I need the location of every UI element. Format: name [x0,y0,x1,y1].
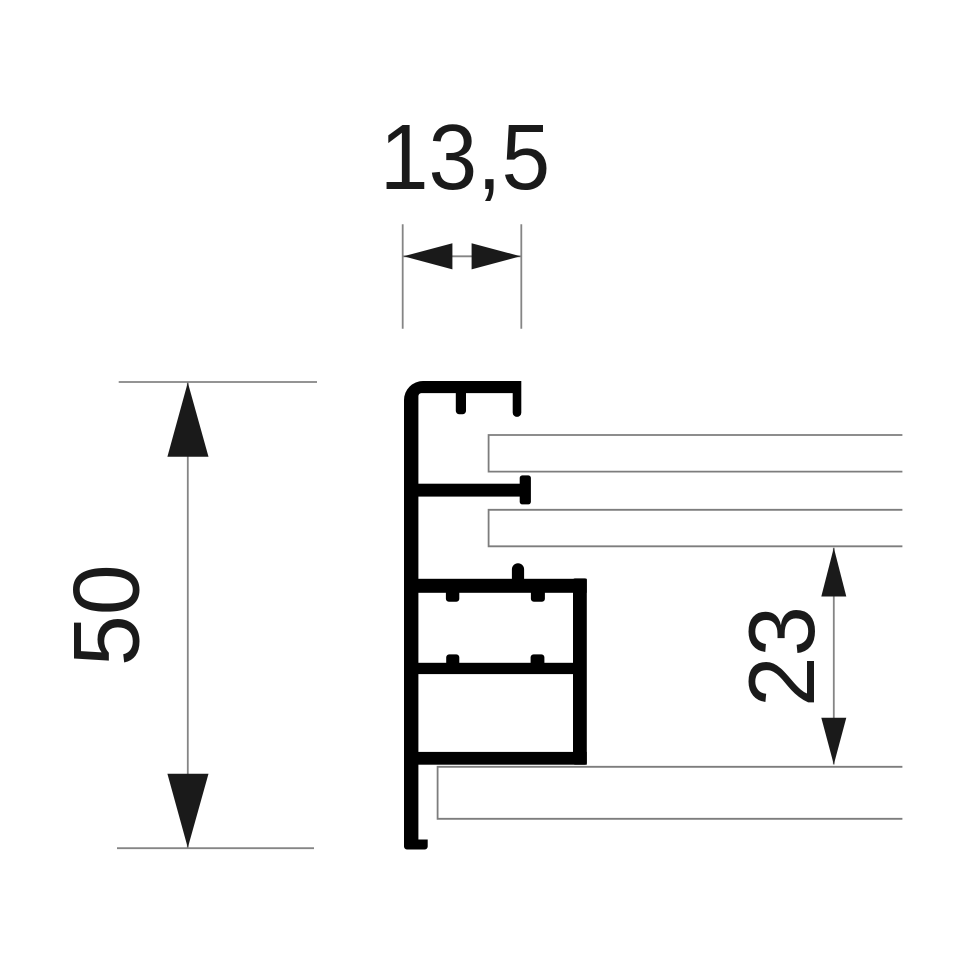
svg-text:13,5: 13,5 [380,105,550,209]
svg-text:23: 23 [728,606,834,707]
svg-text:50: 50 [53,564,158,666]
